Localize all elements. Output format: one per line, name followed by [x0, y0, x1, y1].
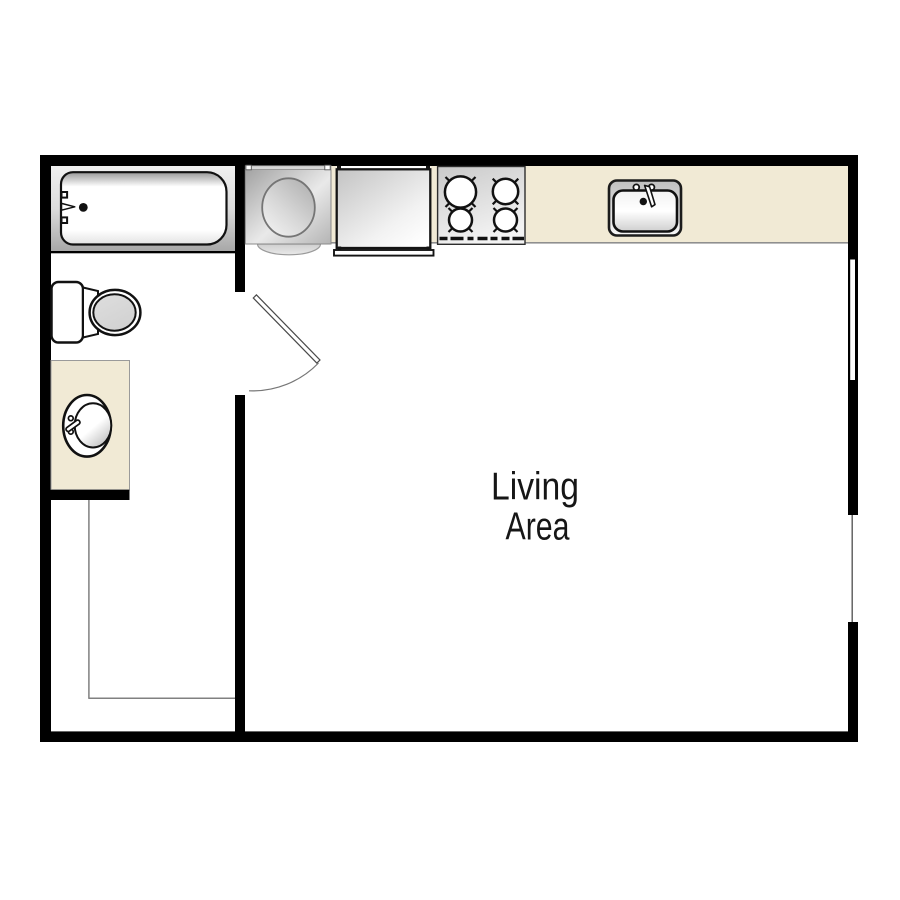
- svg-text:Area: Area: [506, 506, 570, 549]
- svg-text:Living: Living: [491, 466, 579, 509]
